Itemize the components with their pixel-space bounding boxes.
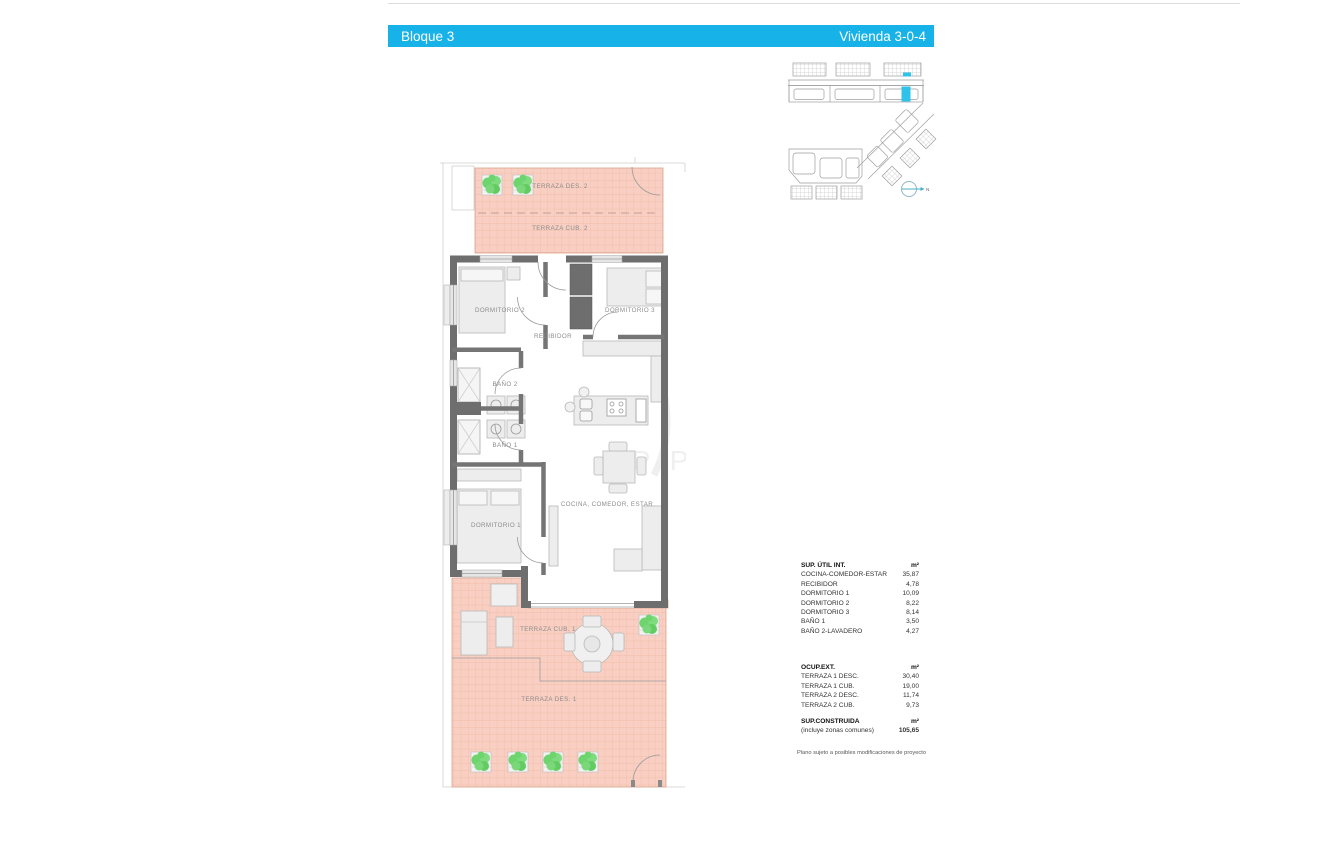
label-dormitorio-3: DORMITORIO 3	[605, 307, 655, 314]
label-dormitorio-1: DORMITORIO 1	[471, 522, 521, 529]
table-row: TERRAZA 2 DESC. 11,74	[801, 691, 919, 700]
disclaimer-note: Plano sujeto a posibles modificaciones d…	[797, 750, 926, 756]
highlighted-unit	[902, 87, 911, 102]
table-row: BAÑO 1 3,50	[801, 617, 919, 626]
row-value: 8,14	[906, 608, 919, 617]
label-cocina: COCINA, COMEDOR, ESTAR	[561, 501, 653, 508]
table-unit: m²	[911, 561, 919, 570]
row-label: DORMITORIO 3	[801, 608, 849, 617]
table-header: OCUP.EXT. m²	[801, 663, 919, 672]
label-terraza-cub-1: TERRAZA CUB. 1	[520, 626, 576, 633]
table-row: DORMITORIO 3 8,14	[801, 608, 919, 617]
table-title: OCUP.EXT.	[801, 663, 835, 672]
table-ocup-ext: OCUP.EXT. m² TERRAZA 1 DESC. 30,40 TERRA…	[801, 663, 919, 710]
table-row: TERRAZA 2 CUB. 9,73	[801, 701, 919, 710]
label-bano-2: BAÑO 2	[492, 381, 517, 388]
row-label: TERRAZA 2 CUB.	[801, 701, 855, 710]
row-value: 10,09	[902, 589, 919, 598]
plan-sheet: Bloque 3 Vivienda 3-0-4	[0, 0, 1320, 859]
floor-plan: J P P	[436, 150, 686, 795]
row-value: 35,87	[902, 570, 919, 579]
north-arrow-icon: N	[902, 182, 930, 197]
table-row: COCINA-COMEDOR-ESTAR 35,87	[801, 570, 919, 579]
row-value: 3,50	[906, 617, 919, 626]
row-value: 11,74	[903, 691, 919, 700]
row-label: BAÑO 2-LAVADERO	[801, 627, 862, 636]
row-value: 105,65	[899, 726, 919, 735]
row-value: 9,73	[906, 701, 919, 710]
terrace-2-area	[475, 168, 663, 253]
site-key-plan: N	[780, 56, 945, 204]
row-value: 19,00	[902, 682, 919, 691]
sheet-top-border	[388, 3, 1240, 4]
label-terraza-des-2: TERRAZA DES. 2	[532, 183, 588, 190]
label-dormitorio-2: DORMITORIO 2	[475, 307, 525, 314]
title-bar: Bloque 3 Vivienda 3-0-4	[388, 25, 934, 47]
table-row: TERRAZA 1 CUB. 19,00	[801, 682, 919, 691]
row-label: TERRAZA 1 CUB.	[801, 682, 855, 691]
row-value: 8,22	[906, 599, 919, 608]
row-value: 4,27	[906, 627, 919, 636]
table-sup-construida: SUP.CONSTRUIDA m² (incluye zonas comunes…	[801, 717, 919, 736]
row-label: TERRAZA 1 DESC.	[801, 672, 859, 681]
table-title: SUP. ÚTIL INT.	[801, 561, 845, 570]
table-row: (incluye zonas comunes) 105,65	[801, 726, 919, 735]
bath-divider-wall	[450, 402, 481, 415]
row-label: RECIBIDOR	[801, 580, 838, 589]
table-header: SUP.CONSTRUIDA m²	[801, 717, 919, 726]
gate-post	[631, 780, 635, 787]
north-label: N	[926, 187, 929, 192]
table-row: DORMITORIO 1 10,09	[801, 589, 919, 598]
table-sup-util-int: SUP. ÚTIL INT. m² COCINA-COMEDOR-ESTAR 3…	[801, 561, 919, 636]
row-label: TERRAZA 2 DESC.	[801, 691, 859, 700]
row-label: BAÑO 1	[801, 617, 825, 626]
row-label: DORMITORIO 2	[801, 599, 849, 608]
table-row: DORMITORIO 2 8,22	[801, 599, 919, 608]
label-terraza-des-1: TERRAZA DES. 1	[521, 696, 577, 703]
row-label: (incluye zonas comunes)	[801, 726, 874, 735]
row-value: 4,78	[906, 580, 919, 589]
label-terraza-cub-2: TERRAZA CUB. 2	[532, 225, 588, 232]
highlighted-unit-terrace	[903, 73, 911, 77]
label-bano-1: BAÑO 1	[492, 442, 517, 449]
table-title: SUP.CONSTRUIDA	[801, 717, 860, 726]
block-title: Bloque 3	[401, 29, 454, 44]
unit-title: Vivienda 3-0-4	[839, 29, 926, 44]
label-recibidor: RECIBIDOR	[534, 333, 572, 340]
exterior-sills	[444, 285, 450, 545]
table-header: SUP. ÚTIL INT. m²	[801, 561, 919, 570]
row-value: 30,40	[902, 672, 919, 681]
neighbor-terrace-edge	[452, 166, 474, 210]
table-row: RECIBIDOR 4,78	[801, 580, 919, 589]
gate-post	[658, 780, 662, 787]
site-outline	[788, 63, 936, 199]
table-row: TERRAZA 1 DESC. 30,40	[801, 672, 919, 681]
table-unit: m²	[911, 663, 919, 672]
table-unit: m²	[911, 717, 919, 726]
row-label: COCINA-COMEDOR-ESTAR	[801, 570, 887, 579]
row-label: DORMITORIO 1	[801, 589, 849, 598]
table-row: BAÑO 2-LAVADERO 4,27	[801, 627, 919, 636]
